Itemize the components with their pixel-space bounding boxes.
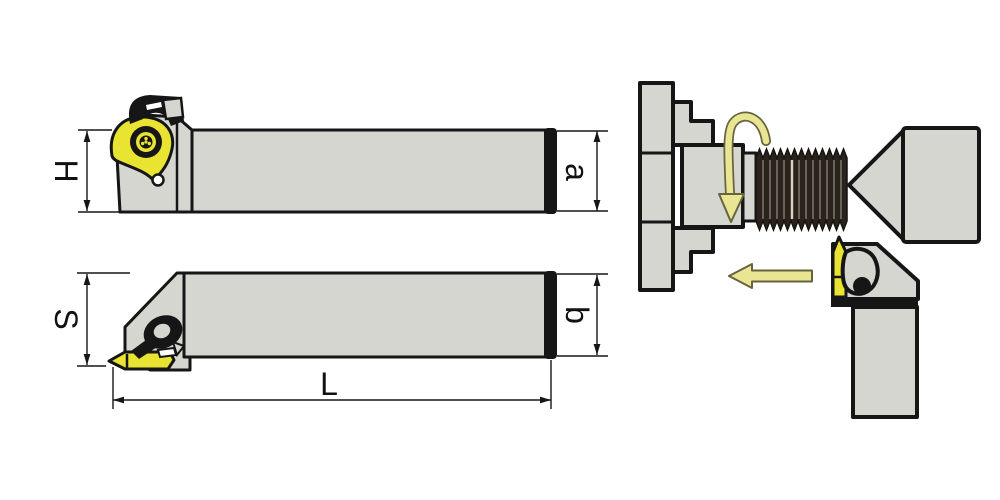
feed-arrow (729, 264, 812, 288)
arrowhead (113, 397, 124, 404)
holder-end-cap (544, 128, 557, 214)
top-holder-top-view (111, 95, 557, 214)
arrowhead (594, 275, 601, 286)
dimension-S: S (48, 273, 130, 366)
arrowhead (594, 200, 601, 211)
holder-end-cap (544, 271, 557, 359)
chuck-bottom-jaw (673, 228, 713, 272)
machining-illustration (640, 83, 979, 417)
threading-toolholder-drawing: H a S b (0, 0, 1000, 500)
arrowhead (84, 354, 91, 365)
dimension-label-a: a (559, 163, 595, 181)
workpiece-neck (743, 153, 756, 221)
threaded-workpiece (756, 149, 847, 230)
bottom-holder-side-view (109, 271, 557, 370)
clamp-face (163, 98, 183, 119)
arrowhead (84, 274, 91, 285)
chuck-top-jaw (673, 102, 713, 145)
tailstock-center (849, 128, 979, 242)
arrowhead (594, 131, 601, 142)
screw-torx-dot (141, 142, 144, 145)
center-cone (849, 131, 903, 239)
dimension-a: a (557, 131, 608, 211)
dimension-label-b: b (559, 306, 595, 324)
chuck-back-plate (640, 83, 673, 290)
arrowhead (84, 200, 91, 211)
screw-torx-dot (144, 137, 147, 140)
dimension-b: b (557, 274, 608, 356)
dimension-label-L: L (320, 366, 338, 402)
arrowhead (594, 344, 601, 355)
holder-shank (184, 273, 550, 357)
arrowhead (84, 131, 91, 142)
screw-torx-dot (148, 142, 151, 145)
arrowhead (540, 397, 551, 404)
screw-torx-dot (144, 140, 147, 143)
clamp-gap-highlight (158, 348, 176, 357)
dimension-label-S: S (48, 308, 84, 329)
holder-shank (853, 307, 917, 417)
clamp-screw (853, 277, 871, 295)
insert-tip-highlight (153, 175, 164, 186)
holder-shank (192, 130, 550, 212)
center-body (903, 128, 979, 242)
cutting-tool-holder (831, 237, 918, 417)
drawing-svg: H a S b (0, 0, 1000, 500)
dimension-label-H: H (48, 159, 84, 182)
